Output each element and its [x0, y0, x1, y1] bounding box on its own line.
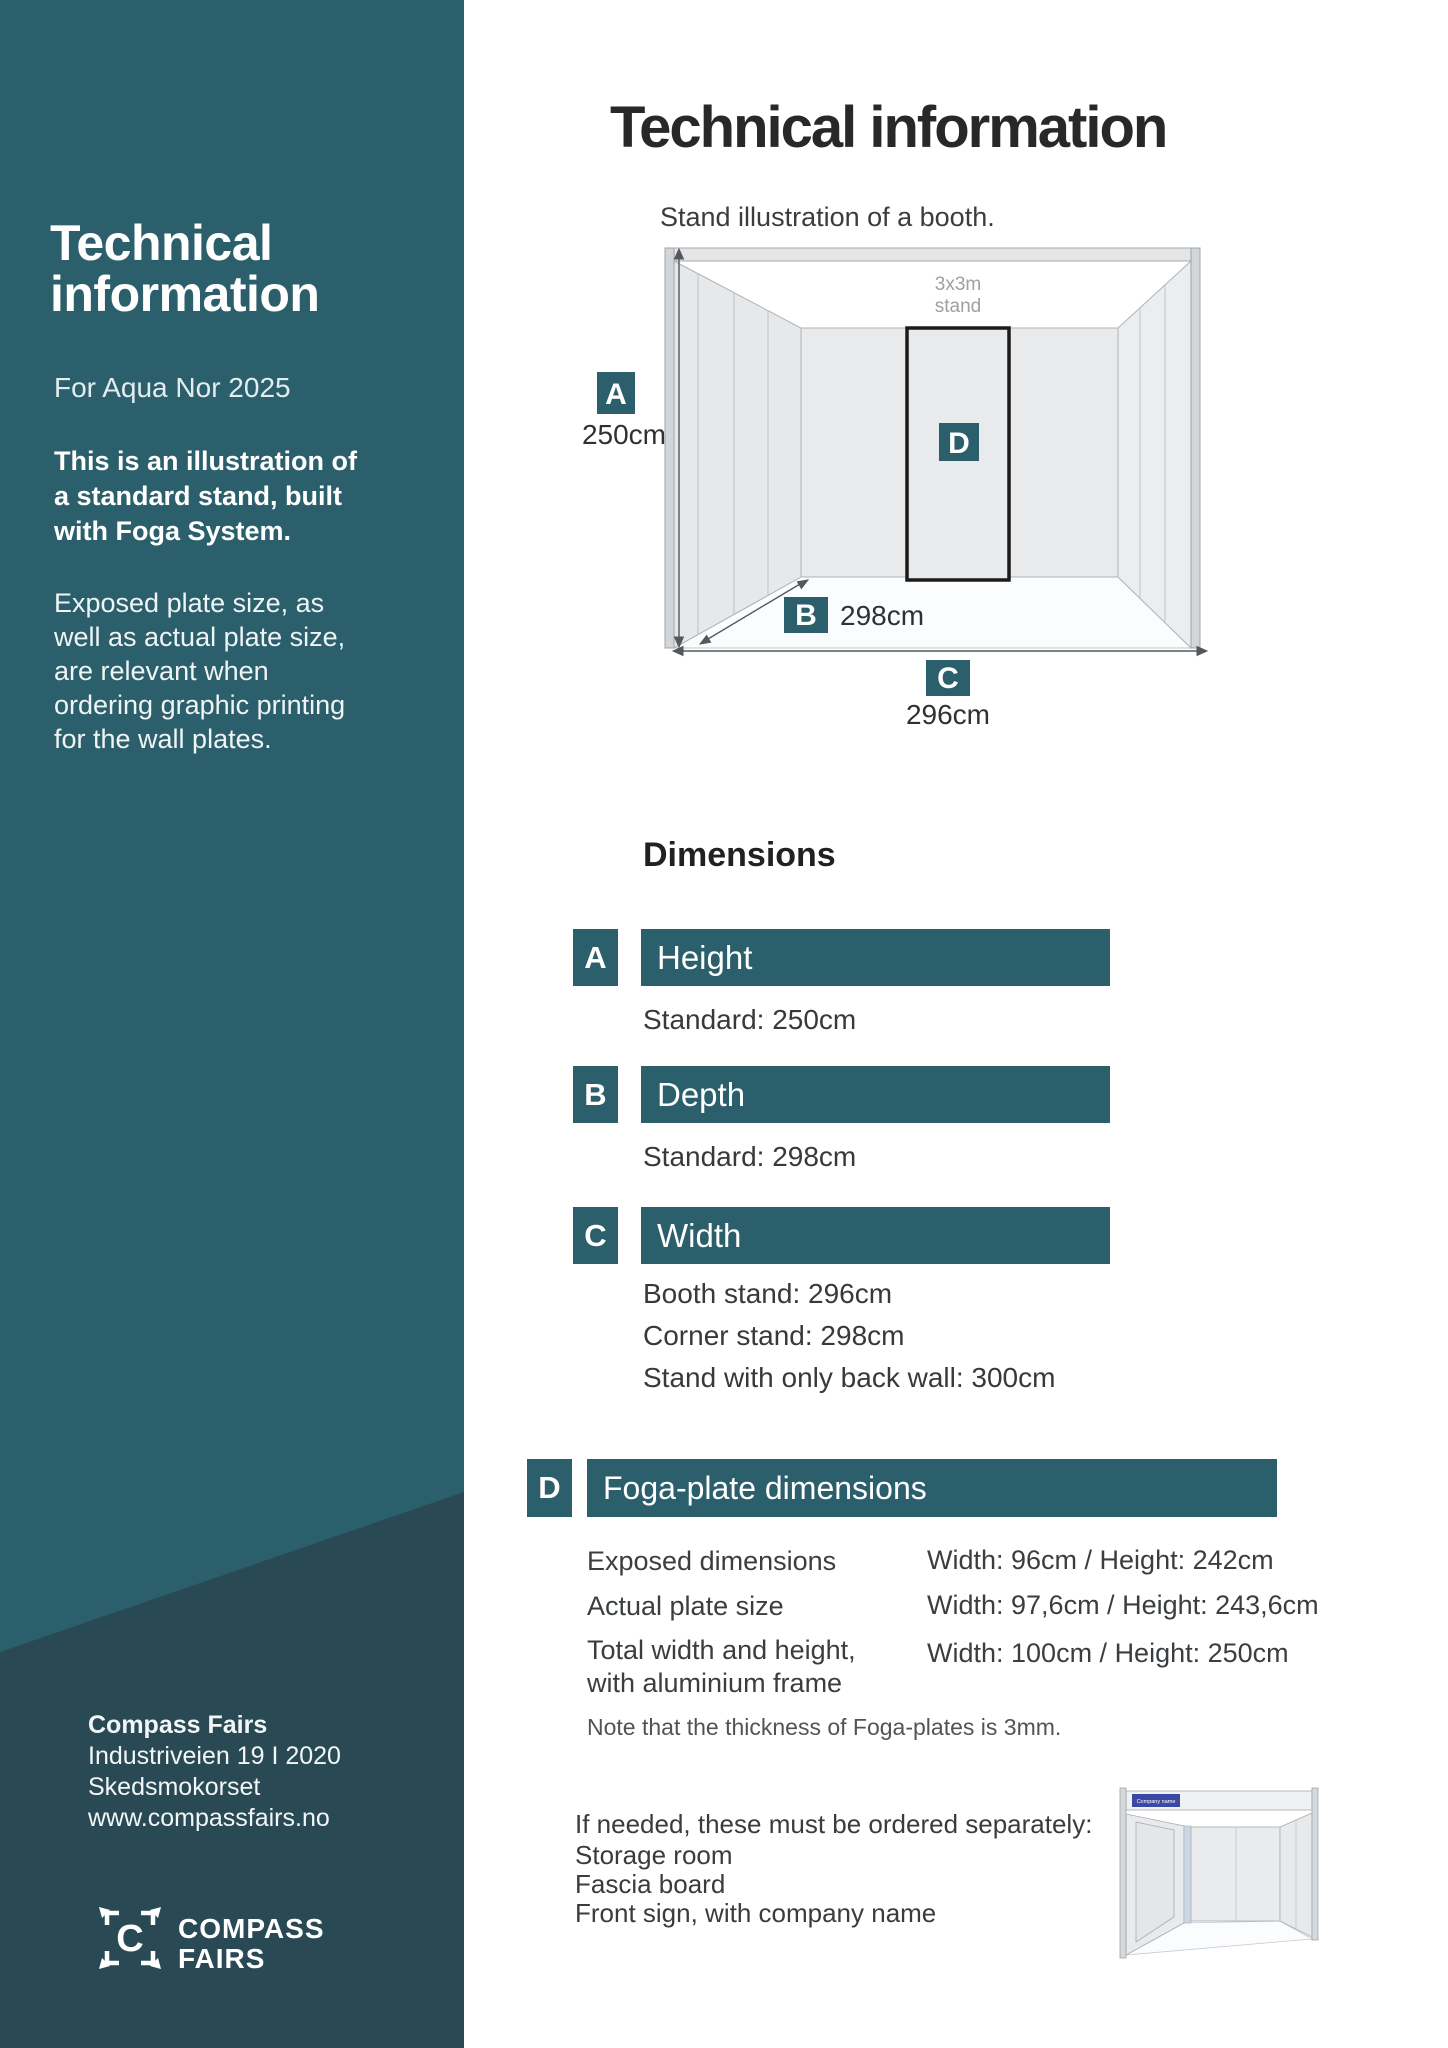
company-name: Compass Fairs: [88, 1710, 341, 1741]
marker-b-label: B: [795, 599, 817, 632]
stand-size-label-line2: stand: [935, 296, 981, 317]
logo-word-fairs: FAIRS: [178, 1944, 325, 1974]
address-street: Industriveien 19 I 2020: [88, 1741, 341, 1772]
dimension-value-height: Standard: 250cm: [643, 1003, 856, 1037]
intro-line: ordering graphic printing: [54, 688, 345, 722]
dimensions-heading: Dimensions: [643, 836, 836, 875]
width-value-booth: Booth stand: 296cm: [643, 1277, 1055, 1311]
sidebar: Technical information For Aqua Nor 2025 …: [0, 0, 464, 2048]
foga-bar-title: Foga-plate dimensions: [587, 1459, 1277, 1517]
marker-c-label: C: [937, 662, 959, 695]
foga-row-label-line1: Total width and height,: [587, 1634, 856, 1667]
marker-d-label: D: [948, 427, 970, 460]
sidebar-title: Technical information: [50, 218, 319, 320]
logo-letter: C: [116, 1918, 143, 1960]
order-item-storage: Storage room: [575, 1841, 733, 1870]
illustration-caption: Stand illustration of a booth.: [660, 202, 995, 233]
measure-b-label: 298cm: [840, 600, 924, 631]
sidebar-intro-text: Exposed plate size, as well as actual pl…: [54, 586, 345, 756]
booth-top-bar: [665, 248, 1200, 261]
intro-bold-line: This is an illustration of: [54, 444, 357, 479]
foga-marker-d: D: [527, 1459, 572, 1517]
foga-row-value: Width: 100cm / Height: 250cm: [927, 1638, 1289, 1669]
address-block: Compass Fairs Industriveien 19 I 2020 Sk…: [88, 1710, 341, 1834]
width-value-backwall: Stand with only back wall: 300cm: [643, 1361, 1055, 1395]
sidebar-title-line2: information: [50, 269, 319, 320]
dimension-bar-depth: Depth: [641, 1066, 1110, 1123]
dimension-marker-b: B: [573, 1066, 618, 1123]
page-title: Technical information: [610, 94, 1166, 161]
intro-line: Exposed plate size, as: [54, 586, 345, 620]
foga-row-value: Width: 97,6cm / Height: 243,6cm: [927, 1590, 1319, 1621]
website-link[interactable]: www.compassfairs.no: [88, 1803, 341, 1834]
mini-booth-illustration: Company name: [1118, 1784, 1320, 1962]
foga-row-label: Total width and height, with aluminium f…: [587, 1634, 856, 1700]
mini-storage-gap: [1184, 1826, 1191, 1923]
dimension-marker-c: C: [573, 1207, 618, 1264]
booth-illustration: 3x3m stand A 250cm B 298cm C 296cm: [580, 244, 1220, 744]
mini-left-post: [1120, 1788, 1126, 1958]
intro-line: are relevant when: [54, 654, 345, 688]
logo-word-compass: COMPASS: [178, 1914, 325, 1944]
document-page: Technical information For Aqua Nor 2025 …: [0, 0, 1448, 2048]
measure-a-label: 250cm: [582, 419, 666, 450]
mini-right-post: [1312, 1788, 1318, 1940]
order-item-fascia: Fascia board: [575, 1870, 725, 1899]
sidebar-subtitle: For Aqua Nor 2025: [54, 372, 291, 404]
intro-line: for the wall plates.: [54, 722, 345, 756]
sidebar-title-line1: Technical: [50, 218, 319, 269]
booth-right-post: [1191, 248, 1200, 648]
compass-fairs-logo-icon: C: [98, 1906, 162, 1970]
foga-thickness-note: Note that the thickness of Foga-plates i…: [587, 1714, 1061, 1741]
dimension-bar-height: Height: [641, 929, 1110, 986]
stand-size-label-line1: 3x3m: [935, 274, 981, 295]
dimension-value-depth: Standard: 298cm: [643, 1140, 856, 1174]
dimension-bar-width: Width: [641, 1207, 1110, 1264]
dimension-marker-a: A: [573, 929, 618, 986]
foga-row-value: Width: 96cm / Height: 242cm: [927, 1545, 1274, 1576]
foga-row-label-line2: with aluminium frame: [587, 1667, 856, 1700]
order-item-frontsign: Front sign, with company name: [575, 1899, 936, 1928]
sidebar-intro-bold: This is an illustration of a standard st…: [54, 444, 357, 549]
order-note-intro: If needed, these must be ordered separat…: [575, 1810, 1092, 1839]
intro-bold-line: a standard stand, built: [54, 479, 357, 514]
marker-a-label: A: [605, 378, 627, 411]
foga-row-label: Actual plate size: [587, 1590, 784, 1623]
logo-wordmark: COMPASS FAIRS: [178, 1914, 325, 1974]
intro-bold-line: with Foga System.: [54, 514, 357, 549]
dimension-values-width: Booth stand: 296cm Corner stand: 298cm S…: [643, 1277, 1055, 1403]
intro-line: well as actual plate size,: [54, 620, 345, 654]
mini-back-wall: [1191, 1827, 1280, 1921]
booth-left-post: [665, 248, 674, 648]
measure-c-label: 296cm: [906, 699, 990, 730]
width-value-corner: Corner stand: 298cm: [643, 1319, 1055, 1353]
mini-sign-text: Company name: [1137, 1799, 1176, 1805]
address-city: Skedsmokorset: [88, 1772, 341, 1803]
foga-row-label: Exposed dimensions: [587, 1545, 836, 1578]
